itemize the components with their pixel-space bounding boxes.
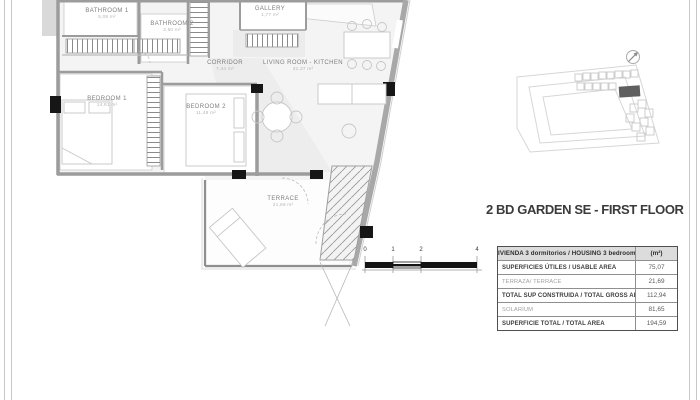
site-key-map xyxy=(517,65,659,152)
table-row-terrace: TERRAZA/ TERRACE 21,69 xyxy=(498,275,677,289)
area-table: VIVIENDA 3 dormitorios / HOUSING 3 bedro… xyxy=(497,246,678,331)
area-table-header-row: VIVIENDA 3 dormitorios / HOUSING 3 bedro… xyxy=(498,247,677,261)
table-row-total-gross-area: TOTAL SUP CONSTRUIDA / TOTAL GROSS AREA … xyxy=(498,289,677,303)
area-table-header-unit: (m²) xyxy=(636,247,677,260)
floor-plan-drawing xyxy=(0,0,700,400)
unit-plan xyxy=(42,0,410,326)
drawing-title: 2 BD GARDEN SE - FIRST FLOOR xyxy=(486,202,686,217)
scale-label-0: 0 xyxy=(363,247,366,253)
table-row-usable-area: SUPERFICIES ÚTILES / USABLE AREA 75,07 xyxy=(498,261,677,275)
scale-label-1: 1 xyxy=(391,247,394,253)
table-row-solarium: SOLARIUM 81,65 xyxy=(498,303,677,317)
scale-label-2: 2 xyxy=(419,247,422,253)
north-arrow-icon xyxy=(627,51,640,64)
drawing-sheet: BATHROOM 1 5,09 m² BATHROOM 2 3,60 m² GA… xyxy=(0,0,700,400)
scale-label-4: 4 xyxy=(475,247,478,253)
area-table-header-label: VIVIENDA 3 dormitorios / HOUSING 3 bedro… xyxy=(498,247,636,260)
site-key-highlight-unit xyxy=(619,85,641,97)
table-row-total-area: SUPERFICIE TOTAL / TOTAL AREA 194,59 xyxy=(498,317,677,330)
scale-bar xyxy=(362,256,482,273)
